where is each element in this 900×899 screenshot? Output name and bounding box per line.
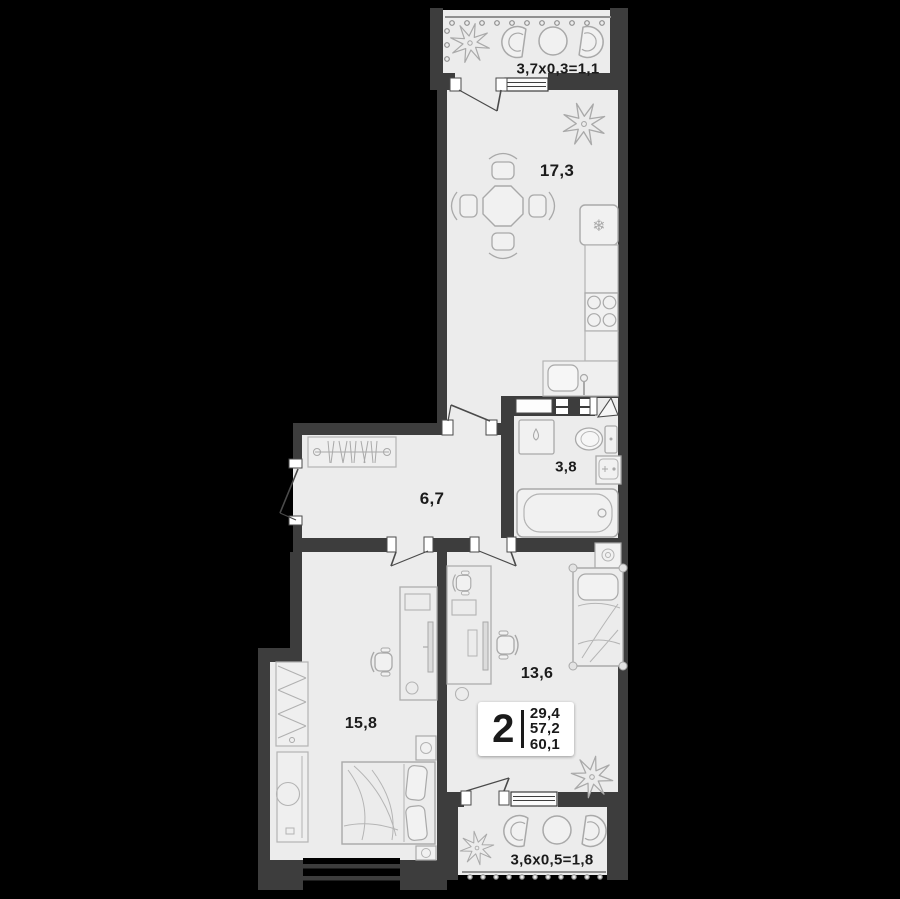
hallway-furniture: [308, 437, 396, 467]
wall: [610, 8, 628, 90]
wall: [437, 88, 447, 423]
wall: [400, 860, 447, 890]
wall: [447, 807, 458, 880]
badge-divider: [521, 710, 524, 748]
dresser-icon: [277, 752, 309, 842]
desk-icon: [400, 587, 437, 700]
round-table-icon: [543, 816, 571, 844]
bathroom-sink-icon: [596, 456, 621, 484]
wall: [427, 538, 473, 552]
floor-plan: ❄: [0, 0, 900, 899]
nightstand-icon: [416, 846, 436, 860]
apartment-info-badge: 2 29,4 57,2 60,1: [478, 702, 574, 756]
pillow-icon: [578, 574, 618, 600]
nightstand-icon: [595, 543, 621, 568]
wall: [258, 860, 303, 890]
stove-icon: [585, 293, 618, 331]
kitchen-floor-lower: [447, 396, 501, 423]
bedroom2-window: [511, 792, 557, 806]
wall: [618, 88, 628, 807]
bedroom-area-label: 15,8: [345, 715, 377, 733]
round-table-icon: [539, 27, 567, 55]
total-area-value: 60,1: [530, 737, 560, 753]
kitchen-sink-icon: [543, 361, 618, 396]
dining-table-icon: [483, 186, 523, 226]
kitchen-counter: [585, 245, 618, 293]
living-area-value: 29,4: [530, 706, 560, 722]
toilet-icon: [576, 426, 618, 453]
wall: [290, 552, 302, 658]
room-count: 2: [492, 709, 514, 749]
wall: [501, 396, 514, 538]
balcony-bottom-dimensions-label: 3,6x0,5=1,8: [511, 852, 594, 869]
wall-niche: [516, 399, 552, 413]
wall: [258, 648, 302, 662]
vent-shaft-icon: [556, 399, 568, 406]
kitchen-window: [505, 78, 548, 91]
bathroom-area-label: 3,8: [555, 459, 577, 476]
bedroom-window: [303, 858, 400, 890]
wall: [258, 662, 270, 890]
bathtub-icon: [517, 489, 618, 537]
kitchen-counter: [585, 331, 618, 361]
floor-plan-drawing: ❄: [0, 0, 900, 899]
wall: [293, 538, 390, 552]
balcony-top-dimensions-label: 3,7x0,3=1,1: [517, 61, 600, 78]
wardrobe-icon: [276, 662, 308, 746]
wall: [437, 552, 447, 860]
wall: [430, 8, 443, 90]
double-bed-icon: [342, 762, 435, 844]
pillow-icon: [405, 805, 427, 841]
washing-machine-icon: [519, 420, 554, 454]
wall: [293, 423, 447, 435]
bedroom2-area-label: 13,6: [521, 665, 553, 683]
single-bed-icon: [569, 564, 627, 670]
wardrobe-rail-icon: [308, 437, 396, 467]
kitchen-area-label: 17,3: [540, 161, 574, 181]
nightstand-icon: [416, 736, 436, 760]
hallway-area-label: 6,7: [420, 489, 445, 509]
fridge-icon: ❄: [580, 205, 618, 245]
monitor-icon: [483, 622, 488, 670]
vent-shaft-icon: [556, 408, 568, 414]
badge-areas: 29,4 57,2 60,1: [530, 706, 560, 753]
monitor-icon: [428, 622, 433, 672]
apartment-area-value: 57,2: [530, 721, 560, 737]
pillow-icon: [405, 765, 427, 801]
snowflake-icon: ❄: [592, 216, 605, 235]
wall: [607, 807, 628, 880]
